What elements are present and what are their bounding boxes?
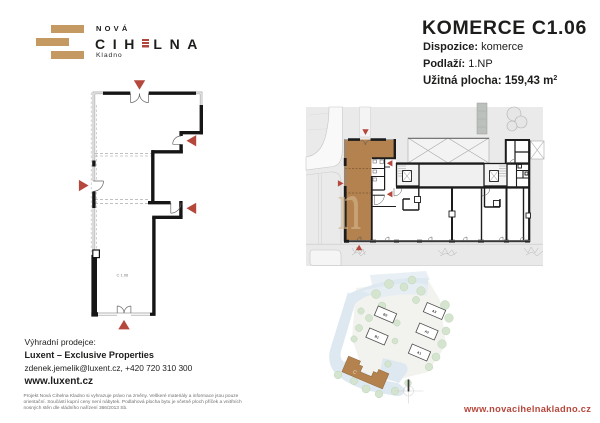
svg-text:n: n bbox=[338, 167, 362, 244]
svg-text:C 1.06: C 1.06 bbox=[117, 273, 130, 278]
